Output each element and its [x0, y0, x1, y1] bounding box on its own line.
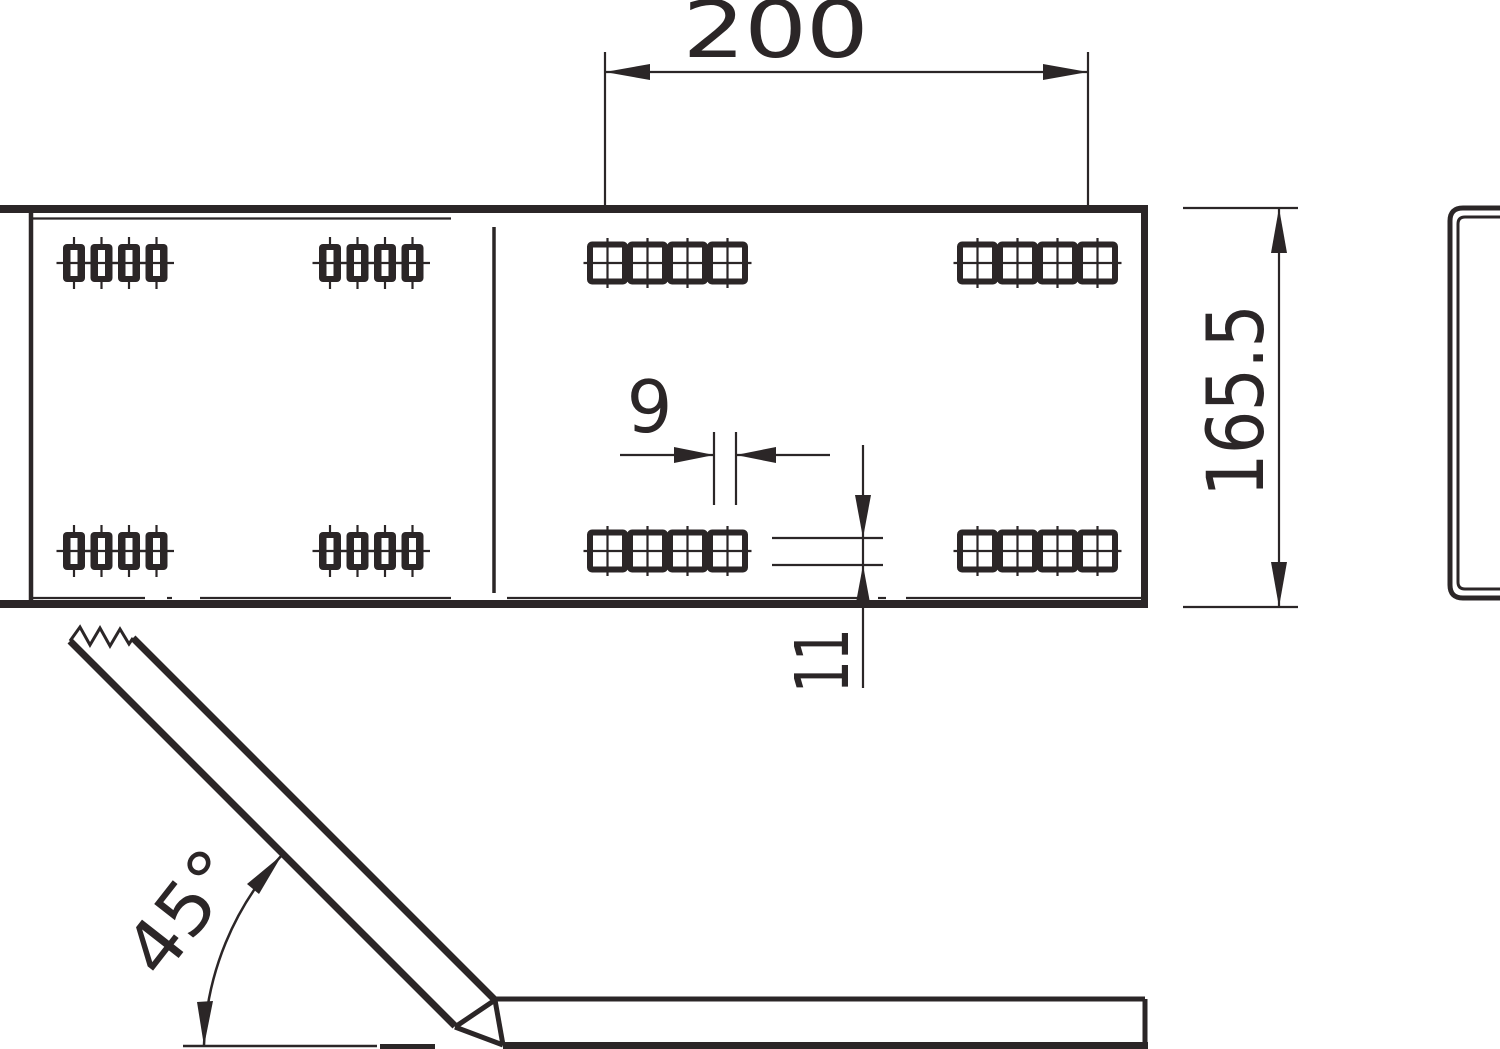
top-view [0, 205, 1148, 608]
square-slot [704, 526, 752, 576]
square-slot [704, 238, 752, 288]
arrow-right-icon [674, 447, 714, 463]
dim-length-label: 200 [683, 0, 868, 76]
arrow-down-icon [1271, 562, 1287, 607]
arrow-up-icon [855, 565, 871, 608]
end-view [1450, 208, 1500, 598]
dim-angle: 45° [108, 834, 377, 1046]
dim-slot-width: 9 [620, 365, 830, 505]
technical-drawing-page: 200 165.5 9 11 [0, 0, 1500, 1049]
arrow-left-icon [736, 447, 776, 463]
dim-slot-height: 11 [772, 445, 883, 693]
arrow-left-icon [605, 64, 650, 80]
technical-drawing: 200 165.5 9 11 [0, 0, 1500, 1049]
joint-cut-edge [455, 1000, 495, 1027]
dim-slot-width-label: 9 [627, 365, 672, 449]
oblong-slot [139, 237, 174, 289]
oblong-slot [139, 525, 174, 577]
dim-angle-label: 45° [108, 834, 257, 992]
dim-height: 165.5 [1183, 208, 1298, 607]
joint-tip-edge [455, 1027, 503, 1045]
side-view: 45° [70, 627, 1148, 1047]
angled-leg-lower-edge [70, 641, 455, 1026]
hole-row-bottom [57, 525, 1122, 577]
dim-length: 200 [605, 0, 1088, 207]
profile-inner-contour [1458, 217, 1500, 589]
break-line-icon [70, 627, 133, 646]
square-slot [1074, 238, 1122, 288]
arrow-down-icon [197, 1001, 213, 1046]
dim-height-label: 165.5 [1192, 305, 1282, 497]
oblong-slot [395, 237, 430, 289]
arrow-down-icon [855, 495, 871, 538]
arrow-up-icon [1271, 208, 1287, 253]
oblong-slot [395, 525, 430, 577]
hole-row-top [57, 237, 1122, 289]
dim-slot-height-label: 11 [780, 629, 866, 693]
square-slot [1074, 526, 1122, 576]
joint-tip-edge [495, 1000, 503, 1045]
arrow-right-icon [1043, 64, 1088, 80]
